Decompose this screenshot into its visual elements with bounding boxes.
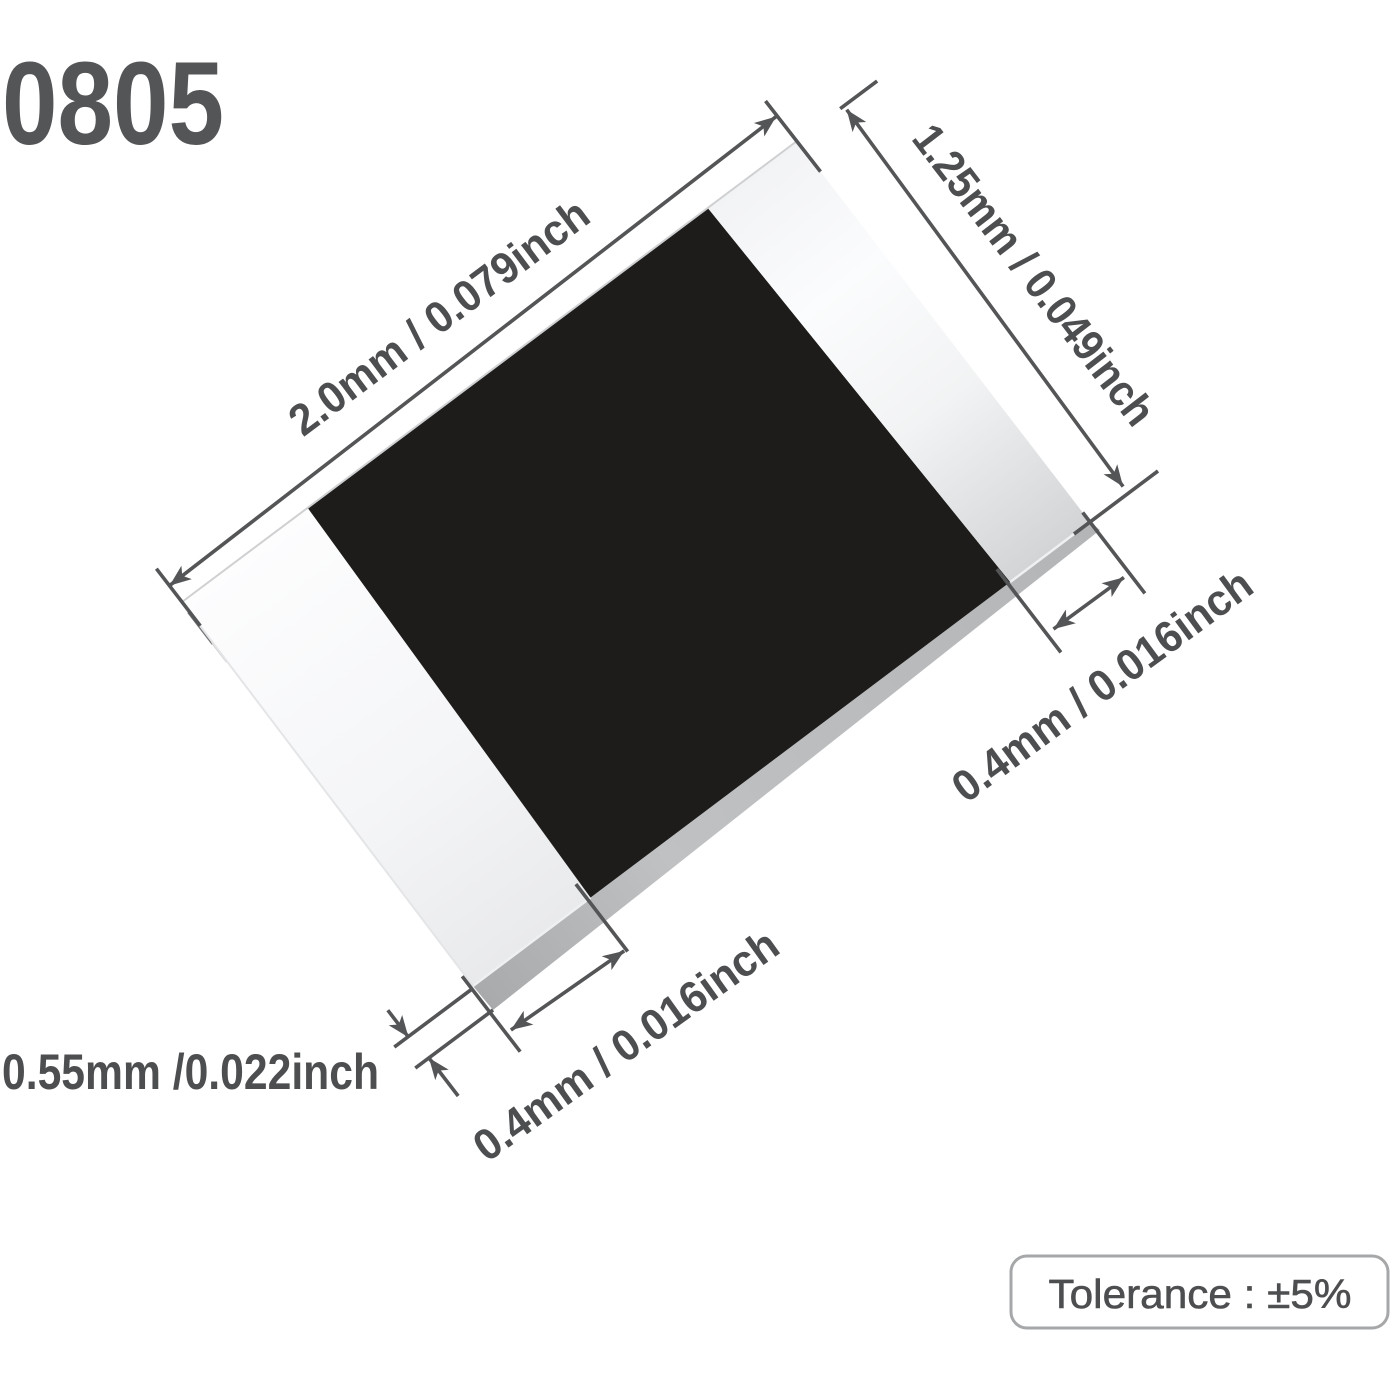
svg-text:Tolerance : ±5%: Tolerance : ±5% bbox=[1049, 1271, 1352, 1317]
svg-text:0805: 0805 bbox=[2, 38, 224, 170]
svg-text:0.55mm /0.022inch: 0.55mm /0.022inch bbox=[2, 1044, 379, 1100]
